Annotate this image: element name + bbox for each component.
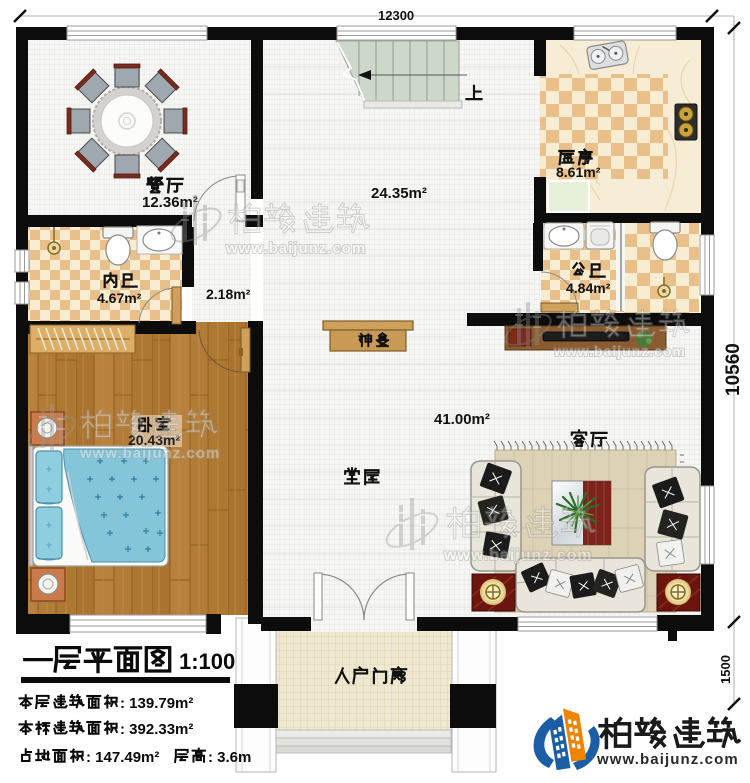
svg-text:8.61m²: 8.61m² — [556, 164, 601, 180]
svg-text:www.baijunz.com: www.baijunz.com — [443, 547, 593, 564]
svg-text:4.67m²: 4.67m² — [97, 290, 142, 306]
svg-text:www.baijunz.com: www.baijunz.com — [553, 343, 686, 359]
svg-text:12300: 12300 — [378, 8, 414, 23]
svg-text:: 3.6m: : 3.6m — [208, 749, 251, 766]
svg-text:: 139.79m²: : 139.79m² — [120, 695, 193, 712]
svg-text:1500: 1500 — [718, 655, 733, 684]
svg-text:www.baijunz.com: www.baijunz.com — [225, 240, 366, 257]
svg-text:24.35m²: 24.35m² — [371, 185, 427, 202]
svg-text:www.baijunz.com: www.baijunz.com — [596, 751, 739, 768]
svg-text:10560: 10560 — [723, 343, 744, 396]
svg-text:www.baijunz.com: www.baijunz.com — [79, 445, 220, 462]
svg-text:4.84m²: 4.84m² — [566, 280, 611, 296]
svg-text:2.18m²: 2.18m² — [206, 286, 251, 302]
svg-text:41.00m²: 41.00m² — [434, 411, 490, 428]
svg-text:1:100: 1:100 — [179, 649, 235, 674]
svg-text:12.36m²: 12.36m² — [142, 194, 198, 211]
svg-text:: 392.33m²: : 392.33m² — [120, 721, 193, 738]
svg-text:: 147.49m²: : 147.49m² — [86, 749, 159, 766]
